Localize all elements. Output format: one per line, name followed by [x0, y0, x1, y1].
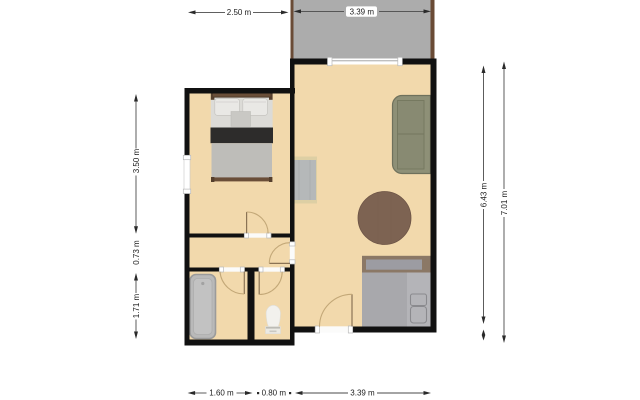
svg-text:2.50 m: 2.50 m [227, 8, 252, 17]
svg-text:0.73 m: 0.73 m [132, 240, 141, 265]
svg-text:1.60 m: 1.60 m [209, 389, 234, 398]
svg-text:1.71 m: 1.71 m [132, 293, 141, 318]
svg-text:0.80 m: 0.80 m [262, 389, 287, 398]
svg-text:7.01 m: 7.01 m [500, 190, 509, 215]
svg-text:3.39 m: 3.39 m [350, 389, 375, 398]
svg-text:3.50 m: 3.50 m [132, 148, 141, 173]
svg-text:3.39 m: 3.39 m [350, 8, 375, 17]
svg-text:6.43 m: 6.43 m [479, 182, 488, 207]
